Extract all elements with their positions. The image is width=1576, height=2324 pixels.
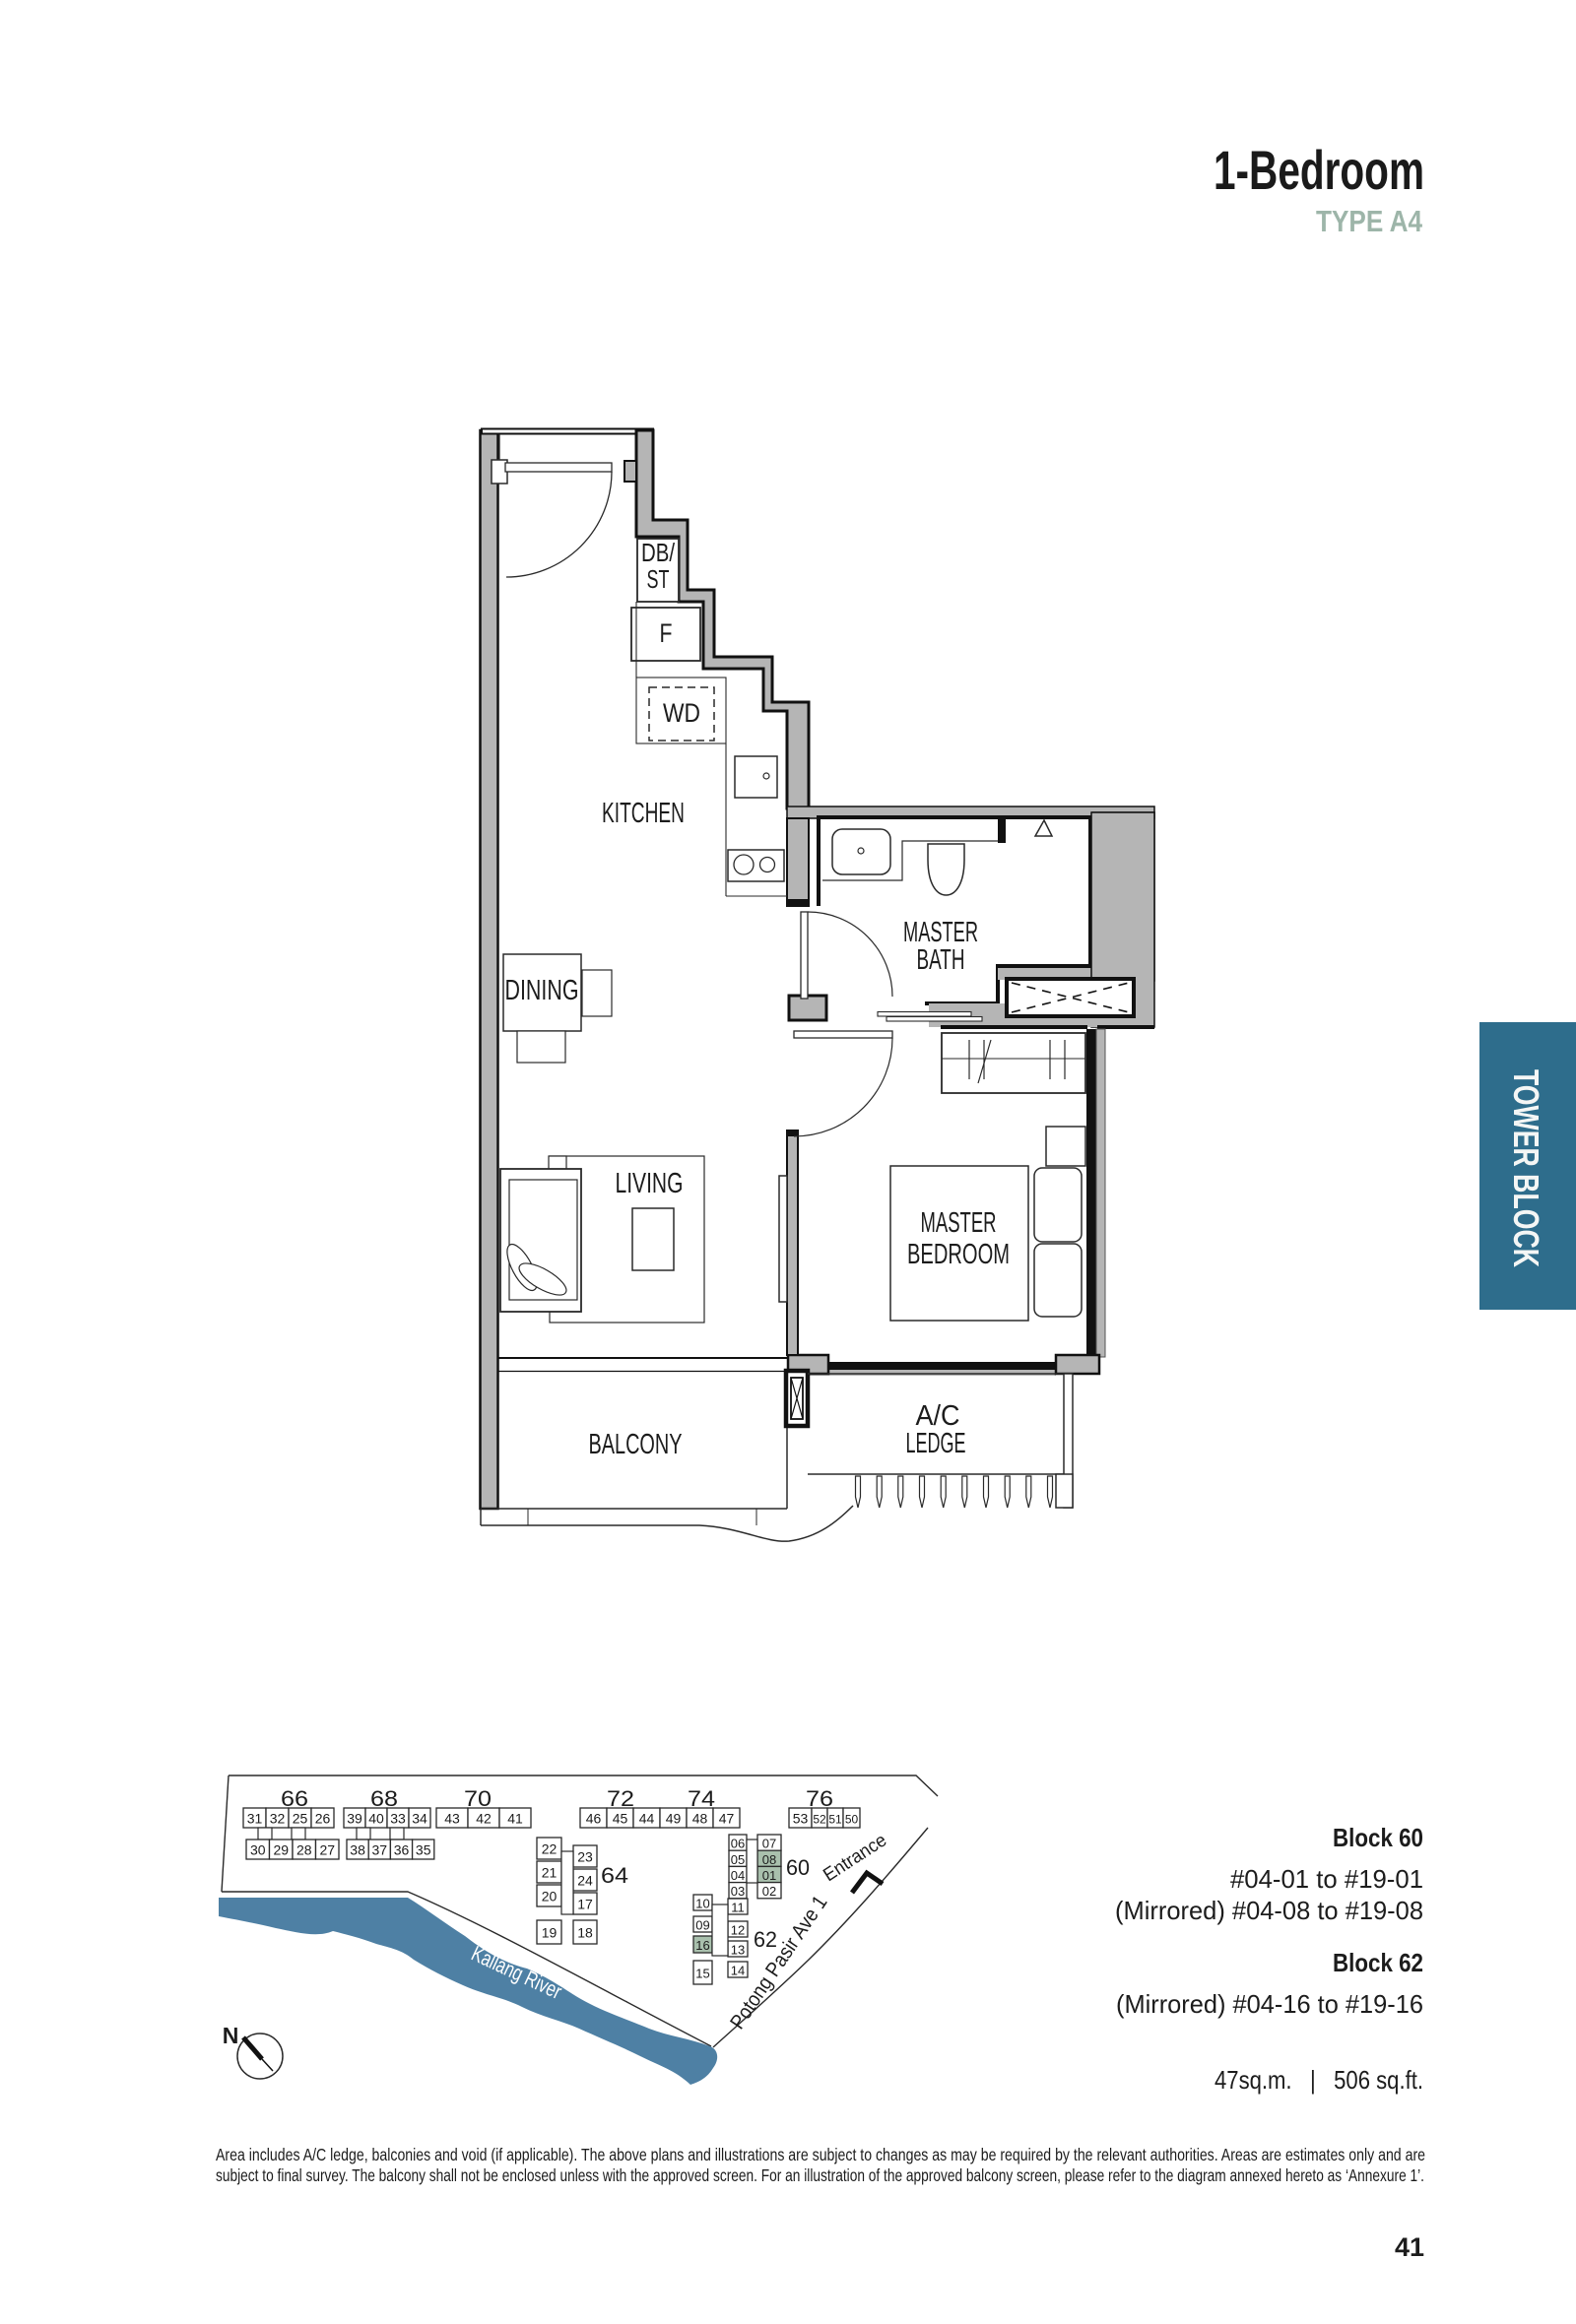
svg-text:30: 30 [250,1842,266,1858]
svg-text:Area includes A/C ledge, balco: Area includes A/C ledge, balconies and v… [216,2145,1425,2164]
svg-text:TYPE A4: TYPE A4 [1316,204,1423,238]
svg-text:25: 25 [293,1811,308,1827]
svg-text:02: 02 [762,1884,776,1899]
svg-text:LIVING: LIVING [616,1168,684,1199]
svg-text:39: 39 [347,1811,362,1827]
svg-text:62: 62 [754,1927,777,1952]
svg-text:40: 40 [368,1811,384,1827]
svg-text:23: 23 [577,1849,593,1865]
svg-text:MASTER: MASTER [921,1207,997,1239]
svg-text:KITCHEN: KITCHEN [602,798,685,829]
svg-text:34: 34 [412,1811,427,1827]
svg-text:09: 09 [695,1918,709,1933]
svg-text:29: 29 [273,1842,289,1858]
svg-text:45: 45 [613,1811,628,1827]
svg-text:BATH: BATH [917,944,965,976]
svg-text:38: 38 [350,1842,365,1858]
svg-text:36: 36 [394,1842,410,1858]
svg-text:35: 35 [416,1842,431,1858]
svg-text:24: 24 [577,1873,593,1889]
svg-text:12: 12 [731,1923,745,1938]
svg-text:64: 64 [601,1863,628,1888]
svg-text:04: 04 [731,1868,745,1883]
svg-text:10: 10 [695,1897,709,1911]
svg-text:20: 20 [542,1889,558,1904]
svg-text:53: 53 [793,1811,809,1827]
svg-text:WD: WD [663,698,700,728]
svg-text:43: 43 [444,1811,460,1827]
svg-text:28: 28 [296,1842,312,1858]
svg-text:11: 11 [731,1901,745,1915]
svg-text:05: 05 [731,1852,745,1867]
svg-text:15: 15 [695,1967,709,1981]
svg-text:52: 52 [813,1813,826,1827]
svg-text:17: 17 [577,1897,593,1912]
svg-text:N: N [223,2023,239,2048]
svg-text:#04-01 to #19-01: #04-01 to #19-01 [1230,1864,1423,1894]
svg-text:50: 50 [845,1813,859,1827]
svg-text:21: 21 [542,1865,558,1881]
svg-text:08: 08 [762,1852,776,1867]
svg-text:(Mirrored) #04-16 to #19-16: (Mirrored) #04-16 to #19-16 [1116,1989,1423,2019]
svg-text:BEDROOM: BEDROOM [907,1239,1010,1270]
svg-text:22: 22 [542,1841,558,1857]
svg-text:Block 62: Block 62 [1333,1948,1423,1977]
svg-text:70: 70 [464,1786,492,1811]
svg-text:16: 16 [695,1938,709,1953]
svg-text:42: 42 [476,1811,492,1827]
svg-text:BALCONY: BALCONY [589,1429,683,1460]
svg-text:DINING: DINING [505,975,579,1006]
svg-text:47sq.m. | 506 sq.ft.: 47sq.m. | 506 sq.ft. [1215,2065,1423,2095]
svg-text:66: 66 [281,1786,308,1811]
svg-text:68: 68 [370,1786,398,1811]
svg-text:41: 41 [507,1811,523,1827]
svg-text:ST: ST [647,564,670,594]
svg-text:31: 31 [247,1811,263,1827]
svg-text:TOWER BLOCK: TOWER BLOCK [1506,1069,1546,1267]
svg-text:subject to final survey. The b: subject to final survey. The balcony sha… [216,2165,1424,2185]
svg-text:27: 27 [319,1842,335,1858]
svg-text:19: 19 [542,1925,558,1941]
svg-text:74: 74 [688,1786,715,1811]
svg-text:1-Bedroom: 1-Bedroom [1214,139,1424,201]
svg-text:32: 32 [270,1811,286,1827]
svg-text:49: 49 [666,1811,682,1827]
svg-text:13: 13 [731,1943,745,1958]
svg-text:LEDGE: LEDGE [906,1428,966,1459]
svg-text:72: 72 [607,1786,634,1811]
svg-text:46: 46 [586,1811,602,1827]
svg-text:Entrance: Entrance [820,1830,890,1886]
svg-text:DB/: DB/ [641,538,676,567]
svg-text:47: 47 [719,1811,735,1827]
svg-text:06: 06 [731,1837,745,1851]
svg-text:F: F [660,618,673,648]
svg-text:Block 60: Block 60 [1333,1823,1423,1852]
svg-text:44: 44 [639,1811,655,1827]
svg-text:26: 26 [315,1811,331,1827]
svg-text:37: 37 [372,1842,388,1858]
svg-text:14: 14 [731,1964,745,1978]
svg-text:18: 18 [577,1925,593,1941]
svg-text:60: 60 [786,1855,810,1880]
svg-text:03: 03 [731,1884,745,1899]
svg-text:76: 76 [806,1786,833,1811]
svg-text:33: 33 [390,1811,406,1827]
svg-text:41: 41 [1395,2232,1424,2262]
svg-text:01: 01 [762,1868,776,1883]
svg-text:(Mirrored) #04-08 to #19-08: (Mirrored) #04-08 to #19-08 [1115,1896,1423,1925]
svg-text:48: 48 [692,1811,708,1827]
svg-text:51: 51 [828,1813,842,1827]
svg-text:07: 07 [762,1837,776,1851]
